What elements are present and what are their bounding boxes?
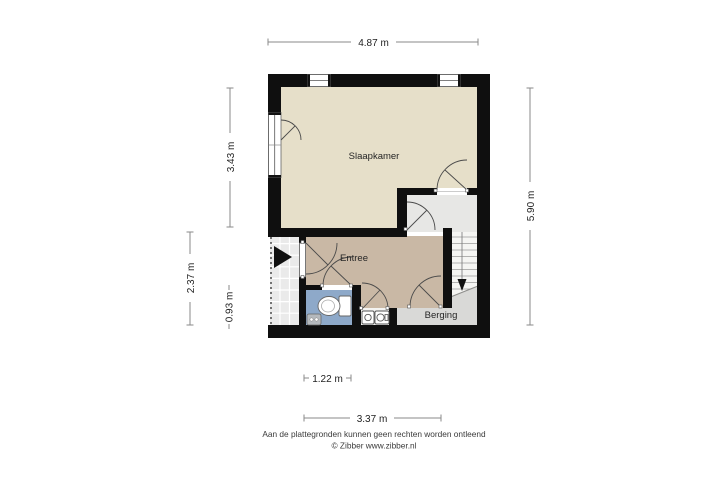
wall-bathroom-top-left	[306, 285, 322, 290]
dimension-left-outer: 2.37 m	[183, 232, 197, 325]
dimension-bottom-outer-label: 3.37 m	[357, 414, 388, 425]
footer-disclaimer: Aan de plattegronden kunnen geen rechten…	[262, 429, 486, 439]
dimension-top: 4.87 m	[268, 35, 478, 49]
floorplan-svg: Slaapkamer Entree Berging 4.87 m 3.43 m …	[0, 0, 720, 480]
sink-icon	[307, 314, 321, 325]
dimension-left-upper-label: 3.43 m	[226, 142, 237, 173]
wall-bathroom-right	[352, 285, 361, 325]
dimension-right: 5.90 m	[523, 88, 537, 325]
landing-floor	[397, 195, 478, 232]
dimension-bottom-outer: 3.37 m	[304, 411, 441, 425]
berging-label: Berging	[425, 310, 458, 321]
dimension-bottom-inner-label: 1.22 m	[312, 374, 343, 385]
dimension-left-inner-label: 0.93 m	[225, 292, 236, 323]
toilet-icon	[318, 296, 351, 316]
dimension-top-label: 4.87 m	[358, 38, 389, 49]
window-top-right	[438, 75, 461, 87]
entree-label: Entree	[340, 253, 368, 264]
dimension-left-inner: 0.93 m	[225, 285, 236, 329]
appliance-left-icon	[362, 311, 374, 324]
dimension-left-upper: 3.43 m	[223, 88, 237, 227]
dimension-right-label: 5.90 m	[526, 191, 537, 222]
slaapkamer-label: Slaapkamer	[349, 151, 400, 162]
wall-slaapkamer-bottom	[268, 228, 407, 237]
floorplan-page: Slaapkamer Entree Berging 4.87 m 3.43 m …	[0, 0, 720, 480]
dimension-left-outer-label: 2.37 m	[186, 263, 197, 294]
window-top-left	[308, 75, 331, 87]
wall-niche-right-stub	[389, 308, 397, 325]
footer-credit: © Zibber www.zibber.nl	[332, 441, 417, 451]
appliance-right-icon	[375, 311, 389, 324]
dimension-bottom-inner: 1.22 m	[304, 371, 351, 385]
wall-right	[477, 74, 490, 338]
wall-entree-right	[443, 228, 452, 308]
wall-bottom	[268, 325, 490, 338]
